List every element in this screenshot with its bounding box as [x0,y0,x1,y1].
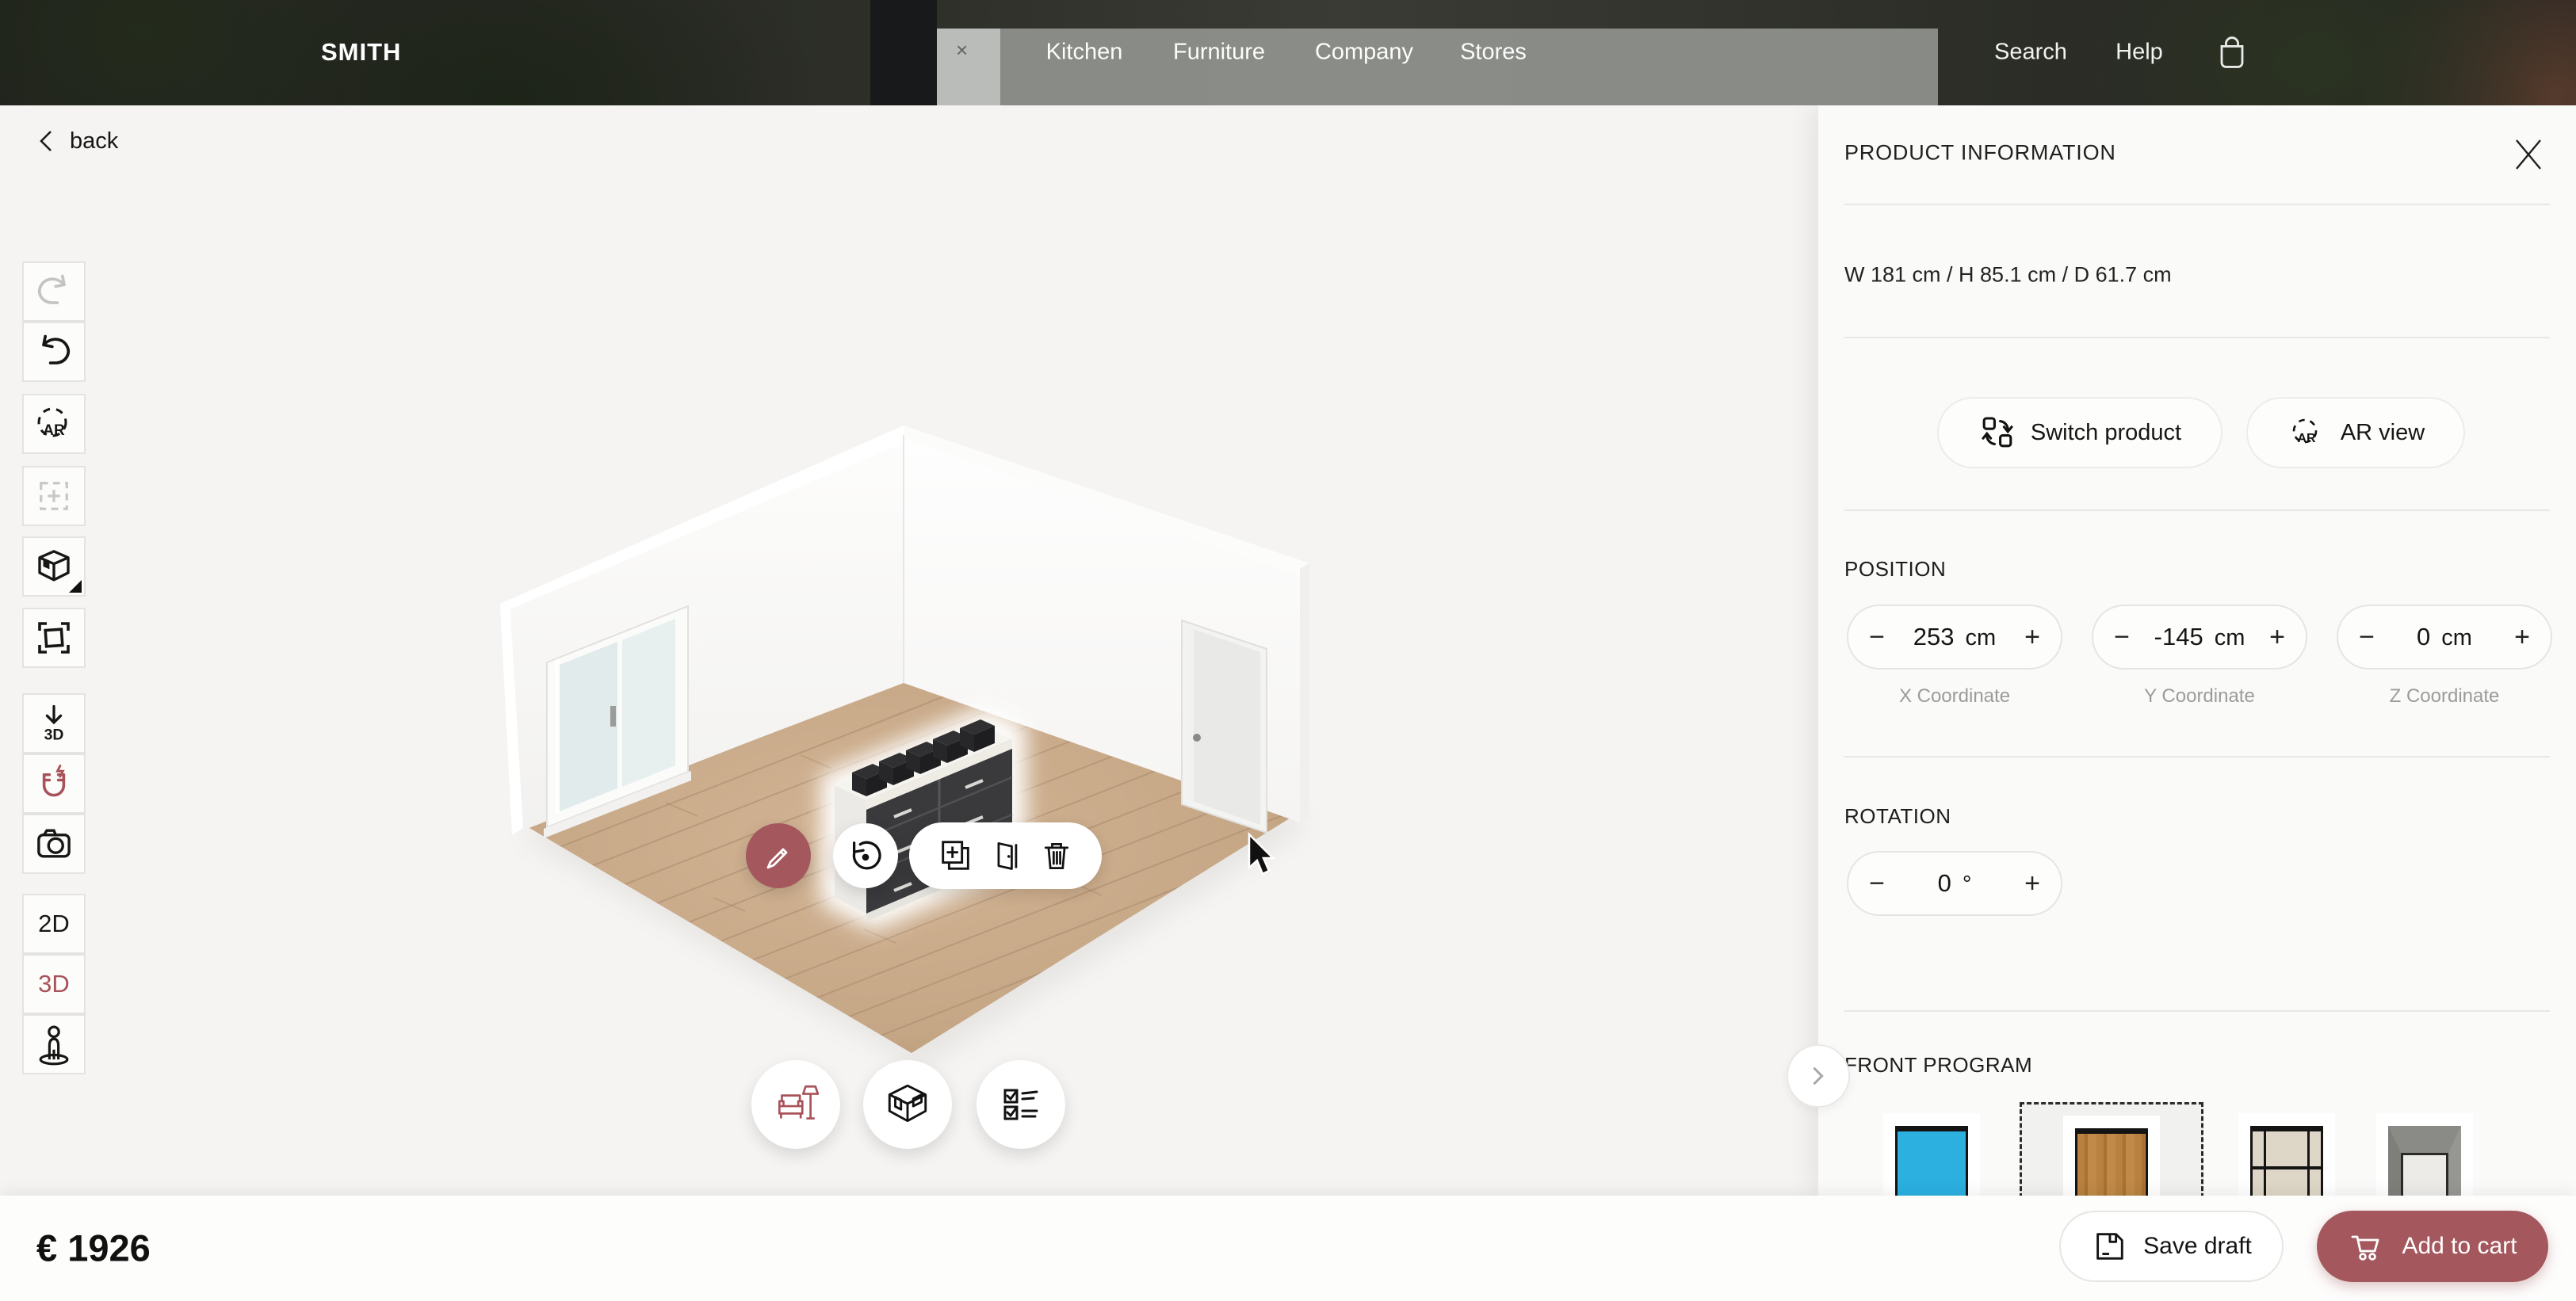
room-icon [883,1080,932,1129]
photo-close-glyph: × [956,38,968,63]
download-3d-icon: 3D [33,701,75,746]
magnet-snap-button[interactable] [22,754,86,814]
ar-icon-label: AR [43,422,65,439]
planner-canvas[interactable]: back AR [0,105,1818,1196]
room-3d-scene [0,105,1818,1196]
furniture-mode-button[interactable] [751,1060,840,1149]
nav-item-company[interactable]: Company [1315,40,1413,66]
x-increase-button[interactable]: + [2004,622,2061,653]
front-program-swatches [1818,1102,2576,1196]
divider [1844,756,2550,757]
select-area-icon [33,475,75,517]
view-3d-button[interactable]: 3D [22,954,86,1014]
position-section-label: POSITION [1844,557,1946,582]
z-coordinate-stepper: − 0cm + [2337,605,2552,670]
y-coordinate-unit: cm [2215,625,2245,651]
nav-item-kitchen[interactable]: Kitchen [1046,40,1123,66]
help-link[interactable]: Help [2115,40,2163,66]
x-decrease-button[interactable]: − [1848,622,1905,653]
back-label: back [70,128,118,155]
object-actions-toolbar [909,822,1102,889]
rotation-unit: ° [1963,872,1972,898]
x-coordinate-stepper: − 253cm + [1847,605,2062,670]
trash-icon [1039,837,1074,874]
brand-logo[interactable]: SMITH [321,38,401,67]
front-swatch-selected-box [2020,1102,2203,1198]
z-coordinate-label: Z Coordinate [2337,685,2552,708]
view-2d-button[interactable]: 2D [22,894,86,954]
redo-icon [33,271,75,312]
z-decrease-button[interactable]: − [2338,622,2395,653]
front-program-section-label: FRONT PROGRAM [1844,1053,2032,1078]
x-coordinate-unit: cm [1966,625,1997,651]
top-bar: × SMITH Kitchen Furniture Company Stores… [0,0,2576,105]
switch-product-icon [1978,414,2016,452]
photo-monitor-panel: × [937,29,1000,105]
walkthrough-button[interactable] [22,1014,86,1074]
rotation-increase-button[interactable]: + [2004,868,2061,899]
frame-icon [32,616,75,659]
y-decrease-button[interactable]: − [2093,622,2150,653]
pencil-icon [761,838,796,873]
divider [1844,337,2550,338]
add-selection-button[interactable] [22,466,86,526]
panel-collapse-button[interactable] [1787,1044,1850,1108]
door-icon [989,837,1024,874]
total-price: € 1926 [36,1227,151,1270]
submenu-corner-marker [69,580,82,593]
rotation-stepper: − 0° + [1847,851,2062,916]
z-coordinate-unit: cm [2441,625,2472,651]
switch-product-button[interactable]: Switch product [1937,397,2222,468]
ar-icon: AR [32,402,76,446]
ar-view-icon: AR [2287,413,2326,452]
bottom-bar: € 1926 Save draft Add to cart [0,1196,2576,1301]
switch-product-label: Switch product [2031,420,2181,446]
redo-button[interactable] [22,261,86,322]
wall-end-cap-right [1300,563,1309,822]
checklist-icon [997,1081,1045,1128]
ar-mode-button[interactable]: AR [22,394,86,454]
download-3d-label: 3D [44,726,64,743]
edit-object-button[interactable] [746,823,811,888]
box-3d-button[interactable] [22,536,86,597]
rotation-value[interactable]: 0 [1938,869,1951,898]
product-dimensions: W 181 cm / H 85.1 cm / D 61.7 cm [1844,263,2172,288]
z-increase-button[interactable]: + [2494,622,2551,653]
ar-view-icon-label: AR [2297,432,2316,445]
chevron-right-icon [1807,1065,1829,1087]
chevron-left-icon [36,128,57,155]
y-coordinate-stepper: − -145cm + [2092,605,2307,670]
pegman-icon [32,1023,75,1066]
cart-icon [2348,1227,2386,1265]
open-door-button[interactable] [989,837,1024,874]
save-icon [2091,1228,2127,1265]
door[interactable] [1182,620,1267,833]
download-3d-button[interactable]: 3D [22,693,86,754]
x-coordinate-value[interactable]: 253 [1913,623,1955,651]
ar-view-button[interactable]: AR AR view [2246,397,2465,468]
y-coordinate-value[interactable]: -145 [2154,623,2203,651]
add-to-cart-label: Add to cart [2402,1233,2517,1260]
z-coordinate-value[interactable]: 0 [2417,623,2430,651]
view-2d-label: 2D [38,910,70,938]
nav-item-stores[interactable]: Stores [1460,40,1527,66]
door-handle [1193,734,1201,742]
search-link[interactable]: Search [1994,40,2067,66]
y-coordinate-label: Y Coordinate [2092,685,2307,708]
close-icon [2511,137,2546,172]
rotate-icon [847,837,884,874]
divider [1844,1010,2550,1012]
rotation-section-label: ROTATION [1844,804,1951,829]
duplicate-object-button[interactable] [938,837,974,874]
divider [1844,509,2550,511]
duplicate-icon [938,837,974,874]
magnet-icon [32,762,75,805]
camera-icon [32,822,75,865]
undo-button[interactable] [22,322,86,382]
room-mode-button[interactable] [863,1060,952,1149]
screenshot-button[interactable] [22,814,86,874]
nav-item-furniture[interactable]: Furniture [1173,40,1265,66]
ar-view-label: AR view [2341,420,2425,446]
panel-close-button[interactable] [2511,137,2546,172]
save-draft-label: Save draft [2143,1233,2252,1260]
y-increase-button[interactable]: + [2249,622,2306,653]
furniture-icon [771,1080,820,1129]
delete-object-button[interactable] [1039,837,1074,874]
save-draft-button[interactable]: Save draft [2059,1211,2284,1282]
item-list-button[interactable] [977,1060,1065,1149]
add-to-cart-button[interactable]: Add to cart [2317,1211,2548,1282]
divider [1844,204,2550,205]
panel-title: PRODUCT INFORMATION [1844,141,2116,166]
kitchen-planner-app: × SMITH Kitchen Furniture Company Stores… [0,0,2576,1301]
rotation-decrease-button[interactable]: − [1848,868,1905,899]
back-button[interactable]: back [36,128,118,155]
product-information-panel: PRODUCT INFORMATION W 181 cm / H 85.1 cm… [1818,105,2576,1196]
fit-view-button[interactable] [22,608,86,668]
rotate-object-button[interactable] [833,823,898,888]
photo-monitor-edge [870,0,937,105]
x-coordinate-label: X Coordinate [1847,685,2062,708]
undo-icon [33,331,75,372]
cart-bag-icon[interactable] [2211,32,2253,73]
view-3d-label: 3D [38,970,70,998]
